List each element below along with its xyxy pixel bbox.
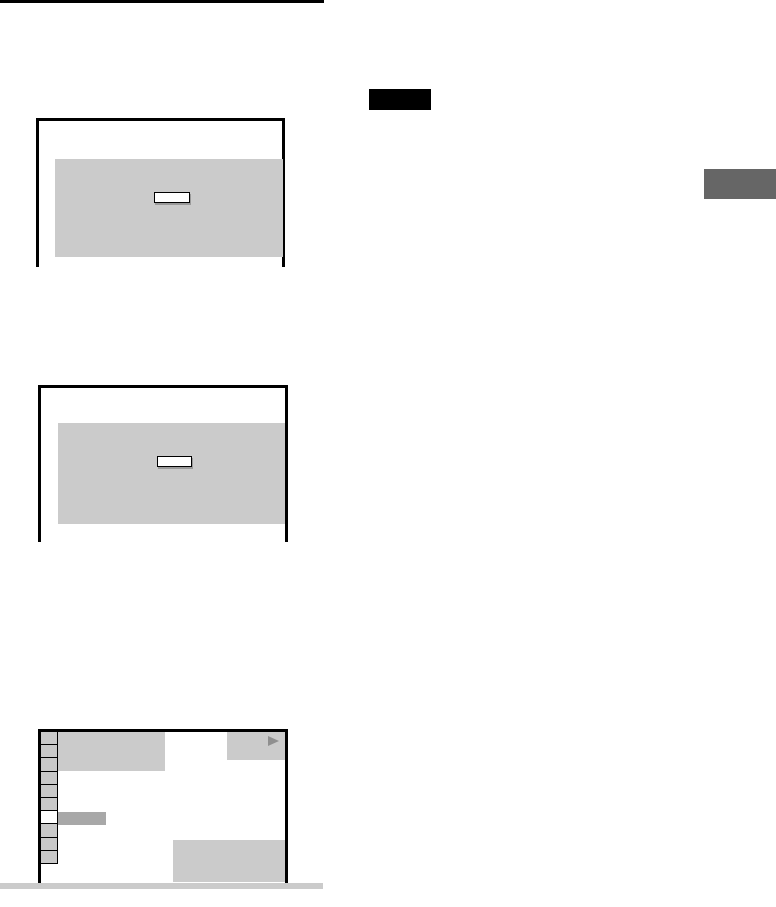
- screen-figure-2-display-area: [58, 423, 285, 524]
- menu-cell-normal: [40, 784, 58, 798]
- play-triangle-icon: [268, 736, 279, 746]
- menu-cell-normal: [40, 850, 58, 864]
- manual-page: [0, 0, 776, 907]
- menu-cell-normal: [40, 837, 58, 851]
- screen-figure-2-osd-button: [157, 456, 192, 467]
- section-divider-rule: [0, 0, 322, 3]
- menu-cell-normal: [40, 771, 58, 785]
- screen-figure-1-display-area: [55, 159, 283, 257]
- menu-sidebar: [40, 731, 58, 864]
- page-bottom-bar: [0, 883, 323, 889]
- menu-cell-normal: [40, 823, 58, 837]
- menu-cell-normal: [40, 731, 58, 745]
- note-badge: [369, 89, 431, 110]
- page-edge-index-tab: [704, 169, 776, 199]
- menu-header-panel: [58, 732, 165, 771]
- screen-figure-1-osd-button: [154, 192, 190, 203]
- menu-cell-highlighted: [40, 810, 58, 824]
- menu-cell-normal: [40, 757, 58, 771]
- menu-selected-row: [58, 812, 106, 825]
- menu-playback-panel: [227, 732, 285, 760]
- menu-cell-normal: [40, 797, 58, 811]
- menu-info-panel: [173, 840, 285, 882]
- menu-cell-normal: [40, 744, 58, 758]
